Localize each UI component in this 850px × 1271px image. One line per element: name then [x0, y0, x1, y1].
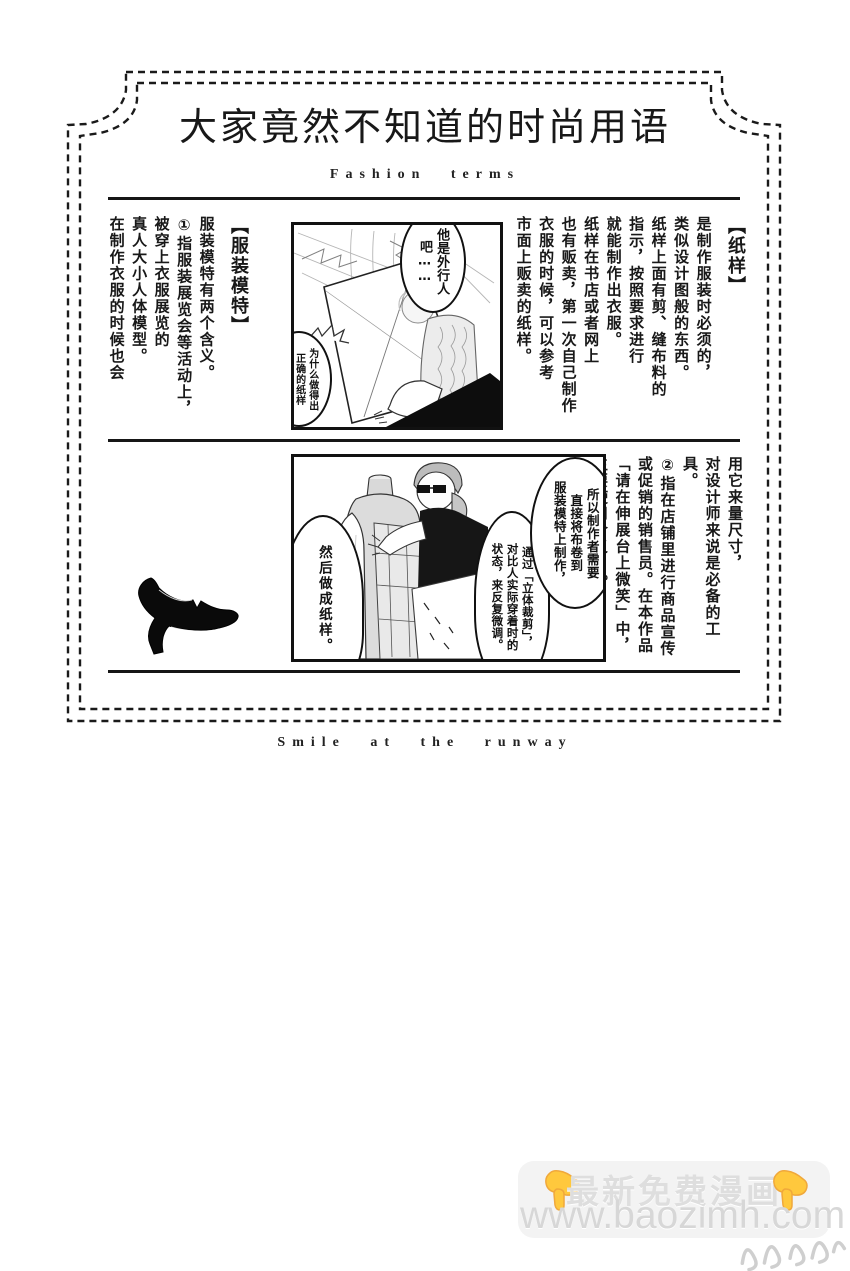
bubble-line: 他是外行人 — [433, 228, 450, 296]
high-heel-shoe-icon — [113, 570, 245, 658]
term-line: 是制作服装时必须的， — [692, 216, 715, 432]
manga-panel-2: 通过「立体裁剪」， 对比人实际穿着时的 状态，来反复微调。 所以制作者需要 直接… — [291, 454, 606, 662]
divider-line-middle — [108, 439, 740, 442]
footer-series-title: Smile at the runway — [0, 735, 850, 751]
term-line: 用它来量尺寸， — [724, 456, 747, 670]
term-line: ①指服装展览会等活动上， — [173, 216, 196, 432]
manga-fashion-terms-page: 大家竟然不知道的时尚用语 Fashion terms 【纸样】 是制作服装时必须… — [0, 0, 850, 1271]
bubble-line: 然后做成纸样。 — [314, 545, 332, 654]
term-line: 也有贩卖，第一次自己制作 — [557, 216, 580, 432]
term-line: 或促销的销售员。在本作品 — [634, 456, 657, 670]
divider-line-top — [108, 197, 740, 200]
term-line: 真人大小人体模型。 — [128, 216, 151, 432]
term-line: 服装模特有两个含义。 — [195, 216, 218, 432]
page-title: 大家竟然不知道的时尚用语 — [0, 96, 850, 151]
term-line: 在制作衣服的时候也会 — [105, 216, 128, 432]
term-line: 纸样在书店或者网上 — [580, 216, 603, 432]
term-line: 衣服的时候，可以参考 — [535, 216, 558, 432]
term-block-continuation: 用它来量尺寸， 对设计师来说是必备的工具。 ②指在店铺里进行商品宣传 或促销的销… — [589, 456, 747, 670]
bubble-line: 对比人实际穿着时的 — [504, 543, 519, 651]
bubble-line: 服装模特上制作， — [550, 481, 567, 585]
term-line: 被穿上衣服展览的 — [150, 216, 173, 432]
term-line: 市面上贩卖的纸样。 — [512, 216, 535, 432]
bubble-line: 直接将布卷到 — [567, 481, 584, 585]
bubble-line: 为什么做得出 — [306, 348, 319, 411]
term-line: 就能制作出衣服。 — [602, 216, 625, 432]
term-block-paper-pattern: 【纸样】 是制作服装时必须的， 类似设计图般的东西。 纸样上面有剪、缝布料的 指… — [512, 216, 747, 432]
term-line: ②指在店铺里进行商品宣传 — [656, 456, 679, 670]
term-block-dress-form: 【服装模特】 服装模特有两个含义。 ①指服装展览会等活动上， 被穿上衣服展览的 … — [105, 216, 250, 432]
bubble-line: 状态，来反复微调。 — [489, 543, 504, 651]
term-line: 指示，按照要求进行 — [625, 216, 648, 432]
manga-panel-1: 他是外行人 吧…… 为什么做得出 正确的纸样 …… — [291, 222, 503, 430]
bubble-line: 正确的纸样 — [292, 348, 305, 411]
bubble-line: …… — [291, 348, 292, 411]
page-subtitle-en: Fashion terms — [0, 167, 850, 183]
term-line: 「请在伸展台上微笑」中， — [611, 456, 634, 670]
divider-line-bottom — [108, 670, 740, 673]
bubble-line: 所以制作者需要 — [583, 481, 600, 585]
term-line: 对设计师来说是必备的工具。 — [679, 456, 724, 670]
term-title: 【服装模特】 — [227, 216, 250, 432]
term-line: 纸样上面有剪、缝布料的 — [647, 216, 670, 432]
term-line: 类似设计图般的东西。 — [670, 216, 693, 432]
bubble-line: 吧…… — [416, 228, 433, 296]
term-title: 【纸样】 — [724, 216, 747, 432]
